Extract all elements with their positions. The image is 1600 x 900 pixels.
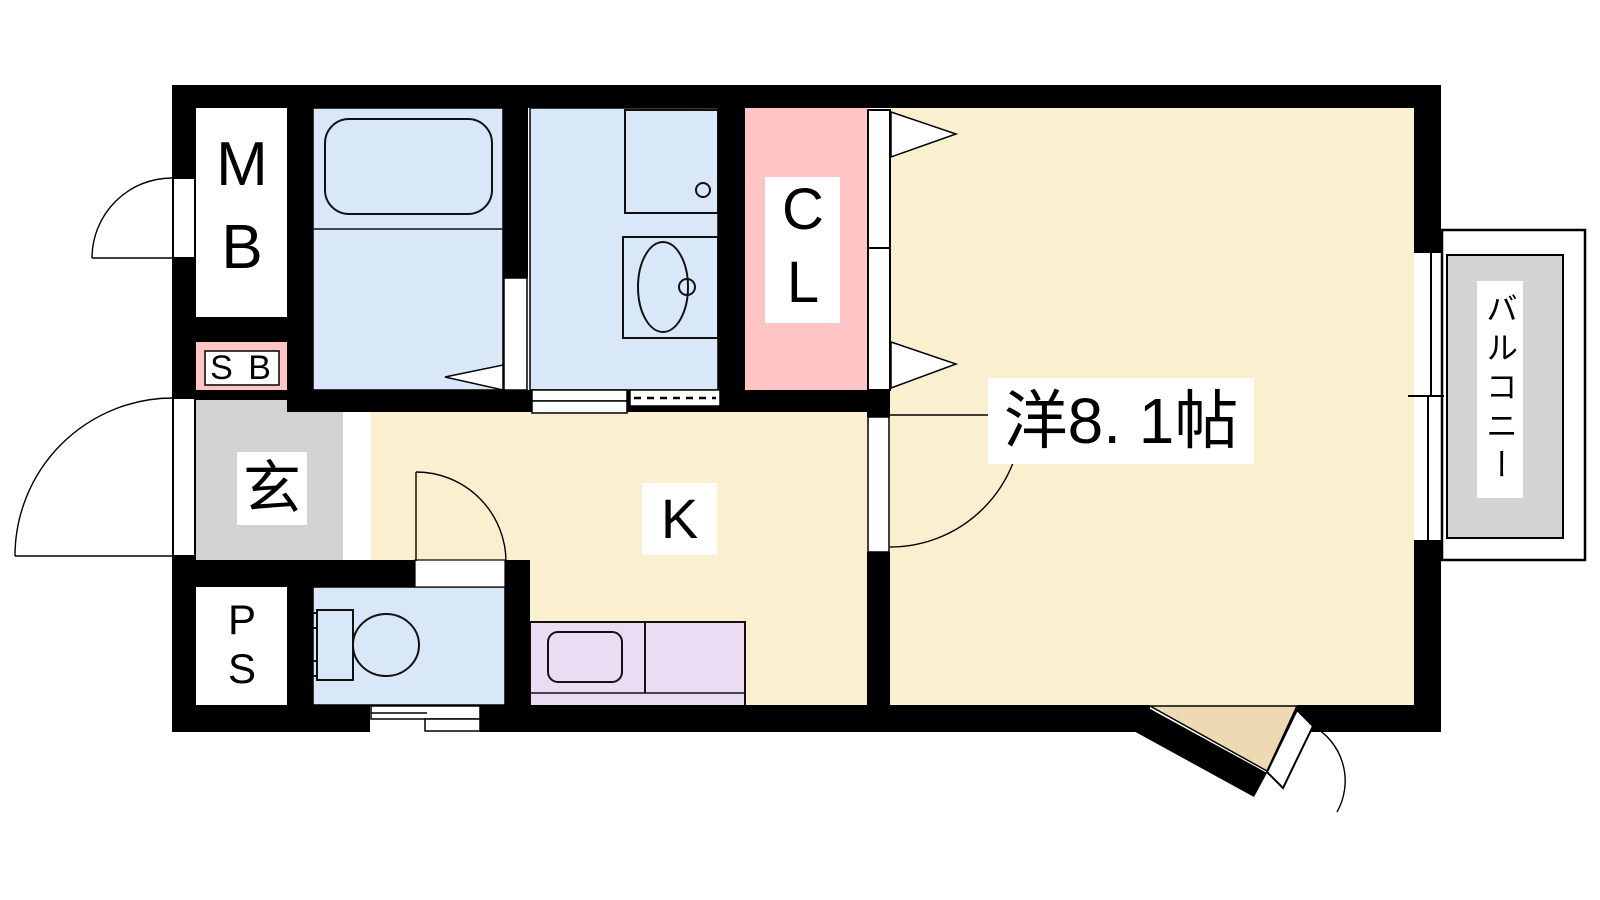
toilet-floor (313, 587, 505, 705)
toilet-door-opening (415, 560, 505, 587)
toilet-bottom-sliding (371, 706, 480, 731)
mb-door-opening (173, 178, 195, 258)
entrance-label: 玄 (237, 452, 307, 525)
wall-under-sb (196, 390, 287, 400)
room-door-opening (868, 417, 889, 552)
meter-box-label: MB (196, 110, 287, 315)
shaft-box-label: S B (205, 351, 279, 385)
mb-door (92, 178, 173, 258)
kitchen-label: K (642, 483, 717, 555)
entrance-door (15, 398, 173, 556)
pipe-space-label: PS (196, 592, 287, 698)
entrance-door-opening (173, 398, 195, 556)
wall-under-entrance (196, 560, 415, 587)
wall-top (172, 85, 1441, 108)
bath-door-opening (504, 278, 527, 390)
corner-door-arc (1313, 726, 1345, 812)
wall-kitchen-room-upper (867, 390, 890, 417)
kitchen-counter (530, 622, 745, 707)
bathroom-floor (313, 108, 503, 390)
wall-bottom-1 (172, 705, 370, 732)
wall-kitchen-room-lower (867, 552, 890, 705)
wall-right-2 (1414, 540, 1441, 732)
balcony-label: バルコニー (1477, 281, 1523, 498)
western-room-label: 洋8. 1帖 (988, 378, 1254, 464)
wall-under-mb (196, 317, 287, 342)
closet-label: CL (765, 177, 840, 323)
wall-toilet-kitchen (505, 560, 530, 705)
wall-bath-washroom (503, 108, 528, 278)
floor-plan: MB S B 玄 PS CL K 洋8. 1帖 バルコニー (0, 0, 1600, 900)
wall-left-2 (172, 258, 196, 398)
wall-left-1 (172, 85, 196, 178)
wall-washroom-closet (718, 108, 745, 390)
wall-right-1 (1414, 85, 1441, 253)
wall-bottom-2 (480, 705, 1150, 732)
wall-mb-column (287, 108, 313, 390)
